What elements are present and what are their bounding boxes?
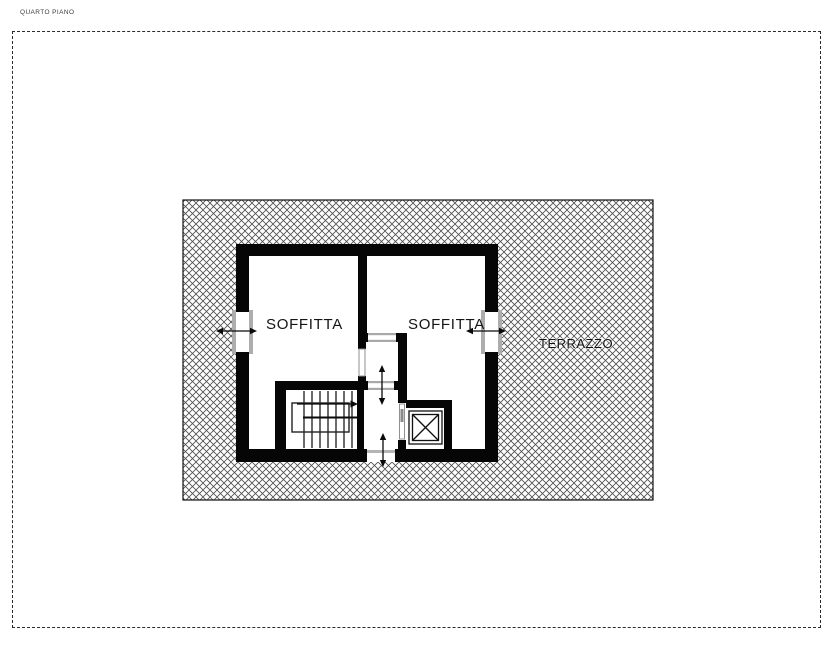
window-left [232,310,253,354]
room-label-soffitta-left: SOFFITTA [266,316,343,333]
elevator-door [398,403,406,440]
vestibule-side-door [359,349,365,376]
floor-plan-page: QUARTO PIANO [0,0,839,648]
room-label-soffitta-right: SOFFITTA [408,316,485,333]
terrace-label: TERRAZZO [539,336,613,351]
